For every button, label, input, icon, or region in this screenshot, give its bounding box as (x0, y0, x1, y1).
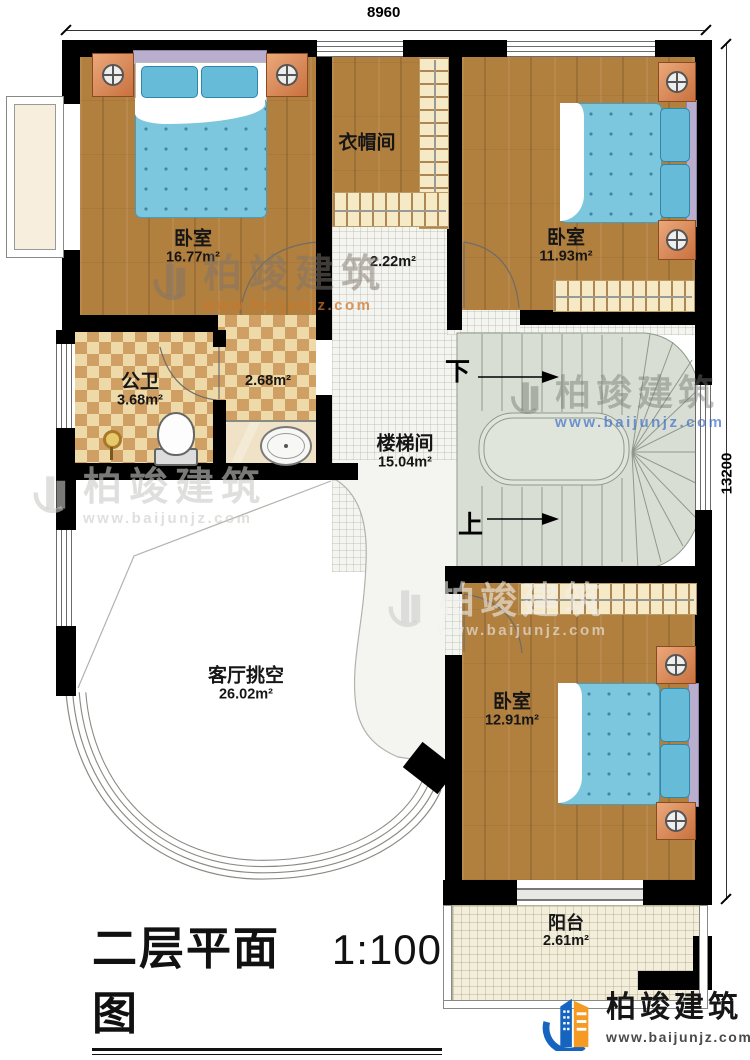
brand-url: www.baijunjz.com (606, 1029, 750, 1045)
window-top-2 (507, 40, 655, 57)
bed3-fold (558, 683, 582, 803)
void-area: 26.02m² (208, 687, 284, 703)
floor-drain-stem (110, 447, 113, 460)
wall-bath-divider-bottom (213, 400, 226, 465)
dim-right-value: 13200 (718, 449, 735, 499)
brand-logo-icon (540, 993, 598, 1051)
bathroom-area: 3.68m² (117, 393, 163, 409)
cloakroom-wardrobe-bottom (332, 192, 449, 227)
brand-logo: 柏竣建筑 www.baijunjz.com (540, 993, 750, 1051)
bedroom2-wardrobe (553, 280, 695, 312)
wall-bed1-left-top (62, 40, 80, 104)
wall-bed3-top (445, 566, 695, 583)
bed3-pillow-top (660, 688, 690, 742)
bedroom1-name: 卧室 (166, 228, 220, 249)
wall-corridor-right (447, 235, 462, 330)
bed2-nightstand-bottom (658, 220, 696, 260)
title-block: 二层平面图 1:100 本层建筑面积：110.78m2 层高：3.3m (92, 912, 442, 1060)
stairwell-label: 楼梯间 15.04m² (376, 433, 433, 471)
toilet-icon (157, 412, 195, 456)
bed1-pillow-left (141, 66, 198, 98)
lamp-icon (102, 64, 124, 86)
window-void-left (56, 530, 76, 626)
wall-bed3-left-stub (445, 566, 462, 594)
stairwell-name: 楼梯间 (376, 433, 433, 454)
wall-left-pier-upper (56, 478, 76, 530)
bedroom3-name: 卧室 (485, 691, 539, 712)
balcony-label: 阳台 2.61m² (543, 913, 589, 949)
wall-right-upper (695, 40, 712, 385)
wall-bath-bottom (56, 463, 358, 480)
balcony-rail-left (443, 905, 452, 1005)
lamp-icon (276, 64, 298, 86)
wall-bath-left-top (56, 330, 75, 344)
bedroom3-label: 卧室 12.91m² (485, 691, 539, 729)
floor-plan-canvas: 卧室 16.77m² 衣帽间 2.22m² 卧室 11.93m² 公卫 3.68… (0, 0, 750, 1060)
wall-left-pier-lower (56, 626, 76, 696)
bathroom-name: 公卫 (117, 371, 163, 392)
void-label: 客厅挑空 26.02m² (208, 665, 284, 703)
dim-top-line (66, 30, 706, 31)
dim-top-value: 8960 (363, 4, 404, 21)
wall-bath-divider-top (213, 330, 226, 347)
wall-top-mid (403, 40, 507, 57)
bed3-nightstand-bottom (656, 802, 696, 840)
bed3-nightstand-top (656, 646, 696, 684)
bed2-fold (560, 103, 584, 221)
lamp-icon (665, 810, 687, 832)
washbasin-icon (260, 426, 312, 466)
stair-up-label: 上 (458, 505, 483, 541)
lamp-icon (665, 654, 687, 676)
brand-name: 柏竣建筑 (606, 993, 750, 1023)
page-title: 二层平面图 (92, 912, 306, 1042)
bed2-nightstand-top (658, 62, 696, 102)
scale-text: 1:100 (332, 926, 442, 974)
wall-cloak-bed2-divider (447, 57, 462, 235)
balcony-sliding-door (517, 888, 643, 901)
bed1-pillow-right (201, 66, 258, 98)
bedroom3-area: 12.91m² (485, 713, 539, 729)
window-bath-left (56, 344, 75, 428)
cloakroom-name: 衣帽间 (338, 132, 395, 153)
balcony-name: 阳台 (543, 913, 589, 933)
wall-bath-top (62, 315, 218, 332)
window-top-1 (317, 40, 403, 57)
bedroom1-area: 16.77m² (166, 250, 220, 266)
bathroom-label: 公卫 3.68m² (117, 371, 163, 409)
bed2-pillow-bottom (660, 164, 690, 218)
lamp-icon (666, 229, 688, 251)
lamp-icon (666, 71, 688, 93)
bed2-pillow-top (660, 108, 690, 162)
cloakroom-label: 衣帽间 (338, 132, 395, 153)
wall-bed2-bottom (520, 310, 695, 325)
title-underline (92, 1048, 442, 1055)
window-stairwell-right (695, 385, 712, 510)
bed1-nightstand-left (92, 53, 134, 97)
corridor-label: 2.22m² (370, 254, 416, 270)
wall-bed3-bottom-left (443, 880, 517, 905)
bedroom1-label: 卧室 16.77m² (166, 228, 220, 266)
wall-bed1-cloak-divider (316, 57, 332, 340)
bay-window-inner (14, 104, 56, 250)
washroom-area: 2.68m² (245, 373, 291, 389)
bed3-pillow-bottom (660, 744, 690, 798)
bedroom2-area: 11.93m² (539, 249, 592, 265)
washroom-label: 2.68m² (245, 373, 291, 389)
corridor-area: 2.22m² (370, 254, 416, 270)
balcony-area: 2.61m² (543, 933, 589, 949)
bedroom3-wardrobe (518, 583, 697, 615)
bedroom2-name: 卧室 (539, 227, 592, 248)
void-name: 客厅挑空 (208, 665, 284, 686)
wall-bath-left-bottom (56, 428, 75, 480)
bedroom2-label: 卧室 11.93m² (539, 227, 592, 265)
bed1-nightstand-right (266, 53, 308, 97)
stair-down-label: 下 (445, 352, 470, 388)
stairwell-area: 15.04m² (376, 455, 433, 471)
wall-bed3-bottom-right (643, 880, 695, 905)
